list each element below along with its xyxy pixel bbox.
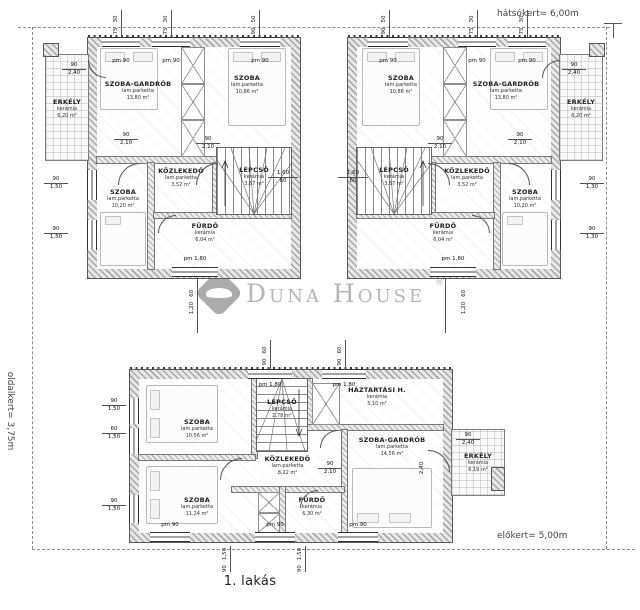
unit-label: 1. lakás bbox=[185, 574, 315, 589]
side-garden-label: oldalkert= 3,75m bbox=[5, 341, 15, 481]
dim-stack: 901,30 bbox=[580, 176, 604, 191]
window bbox=[172, 267, 218, 277]
dim-pair: 901,50 bbox=[222, 545, 230, 575]
window-size-label: pm 90 bbox=[458, 58, 496, 64]
dim-pair: 901,50 bbox=[297, 545, 305, 575]
dim-tick bbox=[121, 10, 122, 37]
room-label-szoba: SZOBA lam.parketta 10,20 m² bbox=[499, 188, 551, 209]
dim-tick bbox=[345, 340, 346, 370]
watermark: Duna House ® bbox=[202, 276, 444, 310]
dim-stack: 1,6060 bbox=[268, 170, 298, 185]
dim-pair: 2,40 bbox=[419, 453, 427, 483]
floor-plan-sheet: { "site": { "back_garden": "hátsókert= 6… bbox=[0, 0, 640, 610]
window-size-label: pm 90 bbox=[102, 58, 140, 64]
dim-pair: 7530 bbox=[469, 10, 477, 40]
dim-tick bbox=[445, 278, 446, 333]
dim-stack-door: 902,10 bbox=[508, 132, 532, 147]
window bbox=[129, 398, 139, 424]
dim-pair: 7530 bbox=[113, 10, 121, 40]
window-size-label: pm 1,80 bbox=[430, 256, 476, 262]
dim-stack-door: 902,10 bbox=[428, 136, 452, 151]
dim-pair: 9050 bbox=[381, 10, 389, 40]
dim-stack: 601,50 bbox=[102, 426, 126, 441]
watermark-brand: Duna House bbox=[246, 279, 425, 308]
window bbox=[458, 37, 496, 47]
window-size-label: pm 90 bbox=[255, 522, 295, 528]
room-label-szoba: SZOBA lam.parketta 11,24 m² bbox=[152, 496, 242, 517]
room-label-szoba: SZOBA lam.parketta 10,56 m² bbox=[152, 418, 242, 439]
dim-pair: 9060 bbox=[337, 341, 345, 371]
dim-stack: 901,50 bbox=[102, 498, 126, 513]
window bbox=[248, 369, 292, 379]
room-label-erkely: ERKÉLY kerámia 6,20 m² bbox=[560, 98, 602, 119]
closet-cell bbox=[443, 84, 467, 121]
dim-stack-door: 902,10 bbox=[318, 461, 342, 476]
room-label-szoba: SZOBA lam.parketta 10,20 m² bbox=[97, 188, 149, 209]
window bbox=[87, 170, 97, 200]
bed bbox=[502, 212, 548, 266]
room-label-erkely: ERKÉLY kerámia 6,19 m² bbox=[452, 452, 504, 473]
window bbox=[240, 37, 280, 47]
dim-stack: 902,40 bbox=[456, 432, 480, 447]
room-label-szoba-gardrob: SZOBA-GARDRÓB lam.parketta 13,80 m² bbox=[98, 80, 178, 101]
window-size-label: pm 1,80 bbox=[248, 382, 292, 388]
window bbox=[551, 170, 561, 200]
dim-stack: 901,50 bbox=[44, 176, 68, 191]
room-label-furdo: FÜRDŐ kerámia 6,04 m² bbox=[403, 222, 483, 243]
closet-cell bbox=[443, 47, 467, 84]
dim-pair: 1,2060 bbox=[461, 287, 469, 317]
dim-stack: 902,40 bbox=[62, 62, 86, 77]
window-size-label: pm 90 bbox=[150, 522, 190, 528]
dim-stack: 901,30 bbox=[580, 226, 604, 241]
window-size-label: pm 90 bbox=[338, 522, 378, 528]
room-label-haztartasi: HÁZTARTÁSI H. kerámia 5,10 m² bbox=[332, 386, 422, 407]
back-garden-label: hátsókert= 6,00m bbox=[497, 9, 579, 19]
partition-wall bbox=[307, 425, 443, 430]
dim-tick bbox=[171, 10, 172, 37]
registered-mark: ® bbox=[435, 278, 444, 288]
front-garden-label: előkert= 5,00m bbox=[497, 531, 567, 541]
window bbox=[129, 495, 139, 523]
closet-cell bbox=[181, 47, 205, 84]
dim-pair: 7530 bbox=[163, 10, 171, 40]
window bbox=[430, 267, 476, 277]
window-size-label: pm 90 bbox=[240, 58, 280, 64]
dim-tick bbox=[305, 546, 306, 572]
dim-stack: 901,50 bbox=[44, 226, 68, 241]
window bbox=[551, 220, 561, 250]
window-size-label: pm 1,80 bbox=[172, 256, 218, 262]
dim-pair: 7530 bbox=[519, 10, 527, 40]
logo-leaf-icon bbox=[206, 288, 232, 298]
dim-tick bbox=[527, 10, 528, 37]
window-size-label: pm 90 bbox=[152, 58, 190, 64]
dim-stack: 1,6060 bbox=[338, 170, 368, 185]
dim-tick bbox=[270, 340, 271, 370]
window bbox=[102, 37, 140, 47]
bed bbox=[100, 212, 146, 266]
room-label-szoba-gardrob: SZOBA-GARDRÓB lam.parketta 13,80 m² bbox=[466, 80, 546, 101]
partition-wall bbox=[232, 487, 344, 492]
dim-stack: 901,50 bbox=[102, 398, 126, 413]
window bbox=[255, 532, 295, 542]
room-label-lepcso: LÉPCSŐ kerámia 2,78 m² bbox=[257, 398, 307, 419]
site-boundary-right bbox=[606, 27, 607, 549]
window bbox=[87, 220, 97, 250]
room-label-szoba: SZOBA lam.parketta 10,86 m² bbox=[206, 74, 288, 95]
balcony-pillar bbox=[44, 44, 58, 56]
dim-pair: 9050 bbox=[251, 10, 259, 40]
window-size-label: pm 1,80 bbox=[322, 382, 366, 388]
room-label-erkely: ERKÉLY kerámia 6,20 m² bbox=[46, 98, 88, 119]
partition-wall bbox=[342, 430, 347, 533]
room-label-szoba: SZOBA lam.parketta 10,86 m² bbox=[360, 74, 442, 95]
window bbox=[508, 37, 546, 47]
dim-tick bbox=[197, 278, 198, 333]
dim-tick bbox=[389, 10, 390, 37]
balcony-pillar bbox=[590, 44, 604, 56]
closet-cell bbox=[258, 492, 280, 513]
dim-stack: 902,40 bbox=[562, 62, 586, 77]
window bbox=[129, 428, 139, 454]
closet-cell bbox=[181, 84, 205, 121]
dim-pair: 1,2060 bbox=[189, 287, 197, 317]
site-boundary-front bbox=[32, 549, 635, 550]
window bbox=[338, 532, 378, 542]
window bbox=[152, 37, 190, 47]
boundary-t-mark-stem bbox=[613, 23, 614, 38]
window bbox=[150, 532, 190, 542]
window-size-label: pm 90 bbox=[508, 58, 546, 64]
dim-stack-door: 902,10 bbox=[114, 132, 138, 147]
site-boundary-side bbox=[32, 27, 33, 549]
room-label-furdo: FÜRDŐ kerámia 6,04 m² bbox=[165, 222, 245, 243]
dim-tick bbox=[230, 546, 231, 572]
room-label-lepcso: LÉPCSŐ kerámia 3,67 m² bbox=[357, 166, 431, 187]
dim-tick bbox=[477, 10, 478, 37]
dim-pair: 9060 bbox=[262, 341, 270, 371]
dim-tick bbox=[259, 10, 260, 37]
dim-stack-door: 902,10 bbox=[196, 136, 220, 151]
window-size-label: pm 90 bbox=[368, 58, 408, 64]
